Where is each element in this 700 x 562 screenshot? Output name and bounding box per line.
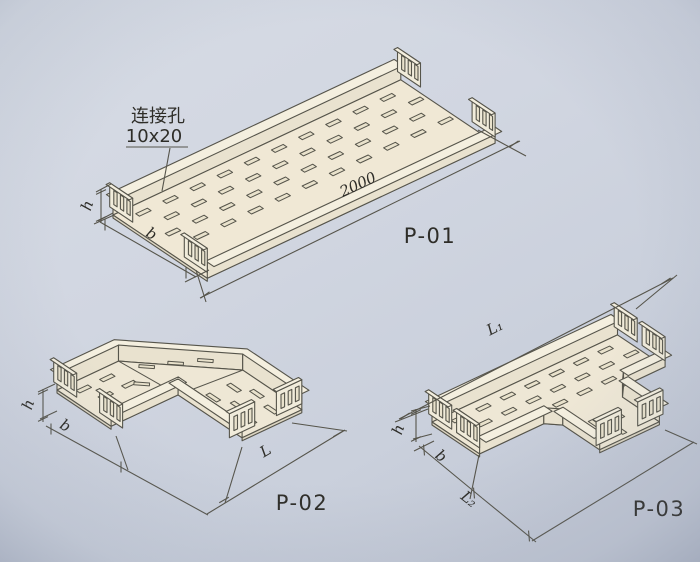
connection-hole bbox=[608, 419, 612, 435]
catalog-page: 连接孔 10x20 h b 2000 P-01 h b L P-02 L₁ h … bbox=[0, 0, 700, 562]
connection-hole bbox=[618, 310, 621, 326]
floor-slot bbox=[168, 361, 184, 365]
connection-hole bbox=[659, 338, 662, 354]
connection-hole bbox=[58, 366, 61, 382]
p03-part-number-label: P-03 bbox=[633, 497, 686, 521]
connection-hole bbox=[188, 241, 191, 257]
connection-hole bbox=[476, 105, 479, 121]
connection-hole bbox=[110, 401, 113, 417]
connection-hole bbox=[281, 393, 285, 409]
connection-hole bbox=[415, 64, 418, 80]
connection-hole bbox=[202, 249, 205, 265]
connection-hole bbox=[615, 416, 619, 432]
connection-hole bbox=[195, 245, 198, 261]
connection-hole bbox=[114, 191, 117, 207]
connection-hole bbox=[461, 416, 464, 432]
connection-hole bbox=[625, 315, 628, 331]
connection-hole bbox=[408, 60, 411, 76]
connection-hole bbox=[64, 370, 67, 386]
connection-hole bbox=[653, 334, 656, 350]
floor-slot bbox=[198, 359, 214, 363]
p01-connection-hole-note: 连接孔 bbox=[131, 106, 185, 127]
connection-hole bbox=[446, 406, 449, 422]
connection-hole bbox=[601, 423, 605, 439]
connection-hole bbox=[642, 403, 646, 419]
connection-hole bbox=[288, 389, 292, 405]
connection-hole bbox=[71, 374, 74, 390]
connection-hole bbox=[657, 396, 661, 412]
connection-hole bbox=[650, 400, 654, 416]
connection-hole bbox=[402, 55, 405, 71]
connection-hole bbox=[632, 319, 635, 335]
connection-hole bbox=[483, 110, 486, 126]
technical-drawing-canvas: 连接孔 10x20 h b 2000 P-01 h b L P-02 L₁ h … bbox=[0, 0, 700, 562]
connection-hole bbox=[241, 412, 245, 428]
floor-slot bbox=[139, 365, 155, 369]
p01-hole-size-note: 10x20 bbox=[126, 126, 182, 147]
connection-hole bbox=[234, 415, 238, 431]
p01-part-number-label: P-01 bbox=[404, 224, 457, 248]
connection-hole bbox=[295, 386, 299, 402]
connection-hole bbox=[248, 408, 252, 424]
connection-hole bbox=[127, 199, 130, 215]
connection-hole bbox=[467, 421, 470, 437]
connection-hole bbox=[646, 329, 649, 345]
connection-hole bbox=[104, 396, 107, 412]
connection-hole bbox=[439, 402, 442, 418]
connection-hole bbox=[489, 114, 492, 130]
floor-slot bbox=[134, 382, 150, 386]
connection-hole bbox=[117, 405, 120, 421]
connection-hole bbox=[474, 425, 477, 441]
p02-part-number-label: P-02 bbox=[276, 491, 329, 515]
connection-hole bbox=[120, 195, 123, 211]
